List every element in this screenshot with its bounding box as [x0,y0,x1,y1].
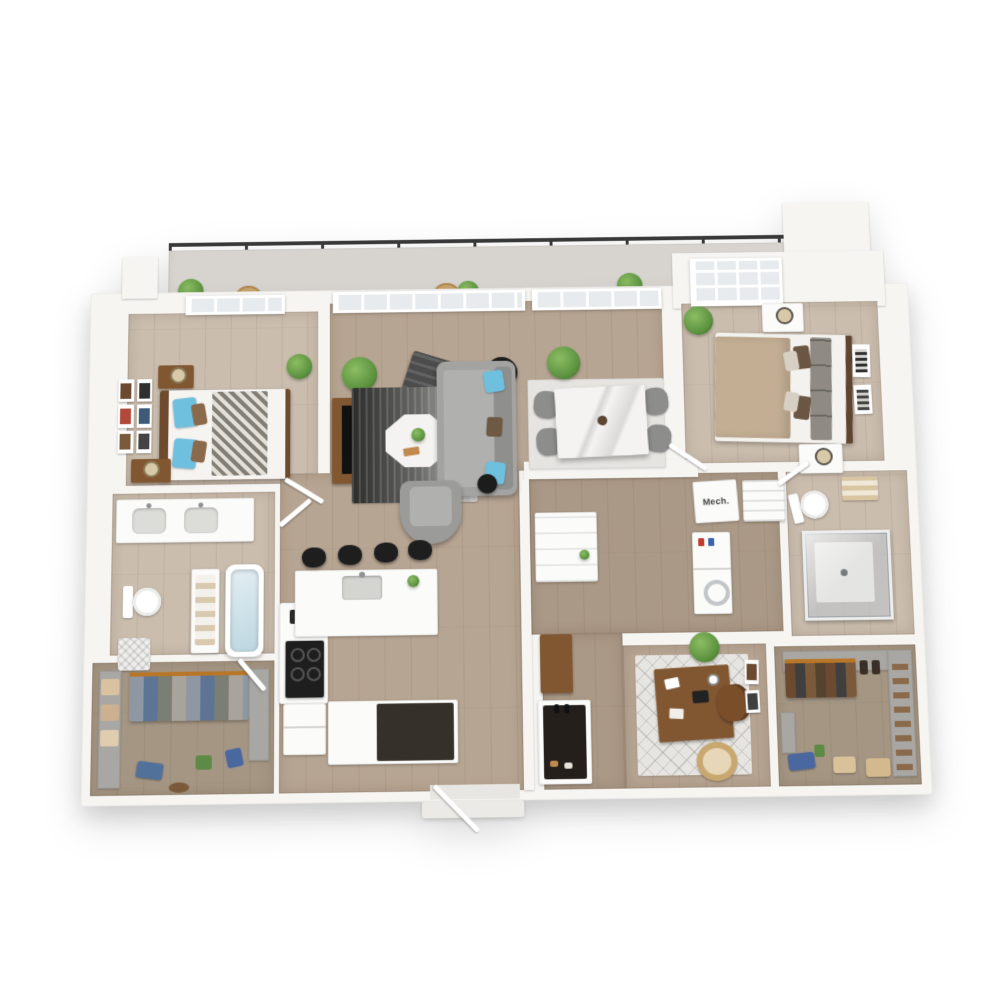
detergent-icon [698,538,704,546]
tv-icon [342,405,352,474]
bathtub-basin [230,569,259,652]
blue-bag [787,752,816,772]
office-wall-frame [745,690,761,713]
gallery-wall [117,379,152,453]
faucet-icon [359,572,365,578]
wall-art [853,385,873,415]
floor-plan-render: Mech. [74,201,933,825]
mech-room-unit: Mech. [692,479,739,523]
wall-frame-icon [118,405,134,428]
toilet-tank [123,586,134,618]
boots-icon [859,660,868,674]
folded-linens [100,730,119,747]
burner-icon [307,648,321,662]
pantry-item-icon [579,550,589,560]
range-stove [285,641,324,698]
door-handle-icon [554,704,559,713]
accent-pillow [486,417,503,437]
mech-label: Mech. [702,496,729,508]
boots-icon [872,660,881,674]
wall-frame-icon [118,379,134,402]
linen-closet-shelves [742,480,785,522]
wall-art [852,344,871,377]
green-item [195,755,211,770]
bedroom-1-window [186,295,285,315]
accent-pillow [190,440,207,463]
chevron-blanket [212,391,268,476]
hall-pantry [535,512,598,582]
appliance-split-line [693,568,731,571]
closet-2-left-shelf [780,712,796,753]
centerpiece-icon [597,415,607,425]
laptop-icon [692,690,709,703]
fridge-door-line [283,726,326,729]
paper-icon [669,708,683,719]
island-plant-icon [407,575,419,587]
bed-1 [159,389,291,481]
coat-closet-interior [543,705,587,779]
tan-duvet [715,336,790,438]
table-lamp-icon [775,307,793,324]
storage-basket [833,756,856,773]
paper-icon [664,677,680,690]
armchair-seat [410,486,452,526]
mug-icon [707,673,720,686]
wall-frame-icon [117,431,133,454]
kitchen-island [295,569,438,637]
island-sink [342,575,382,600]
accent-pillow [191,403,208,427]
burner-icon [291,648,305,662]
dining-glass-wall [532,288,662,311]
wall-frame-icon [136,405,152,428]
denim-pile [135,761,164,781]
sofa [436,361,517,497]
coat-closet [538,700,592,785]
detergent-icon [708,538,714,546]
shoes-icon [564,762,572,768]
bedroom-2-skylight-window [690,258,784,307]
headboard-cushions [810,337,832,440]
refrigerator [283,703,326,755]
shoe-rows-icon [892,656,914,771]
vanity-sink [184,507,218,533]
linen-shelf [191,569,220,654]
dark-cabinet [377,703,455,761]
door-handle-icon [564,704,569,713]
shower-glass-sheen [805,533,884,612]
wall-frame-icon [136,430,152,453]
bed-2 [715,333,853,444]
hanging-clothes [785,658,857,698]
towel-shelf [842,476,879,500]
toilet-bowl [133,588,162,616]
green-item [814,745,825,757]
shoes-icon [550,761,558,767]
double-vanity [116,498,254,543]
washer-door-icon [703,580,730,606]
dining-table [554,384,649,458]
burner-icon [291,667,305,681]
folded-linens [101,679,120,696]
vanity-sink [132,508,166,534]
coffee-table-books [403,446,420,456]
hanging-clothes [129,671,249,722]
living-glass-wall [333,290,525,314]
folded-linens [101,704,120,721]
storage-basket [866,758,891,777]
table-plant-icon [411,428,425,442]
stacked-washer-dryer [692,532,733,614]
left-wall-stub [122,257,158,299]
glass-shower [802,530,894,621]
entry-step [422,800,524,818]
blue-pillow [482,369,505,393]
laundry-hamper [118,638,151,671]
burner-icon [307,667,321,681]
entry-console [540,634,573,693]
bar-stool [407,539,432,560]
bathtub [225,564,264,657]
office-wall-frame [745,660,759,685]
wall-frame-icon [137,379,153,402]
table-lamp-icon [814,448,833,466]
bar-stool [337,545,362,566]
blue-item [224,747,244,769]
toilet [123,583,168,620]
folded-towels [195,575,216,646]
light-pillow [783,391,800,413]
